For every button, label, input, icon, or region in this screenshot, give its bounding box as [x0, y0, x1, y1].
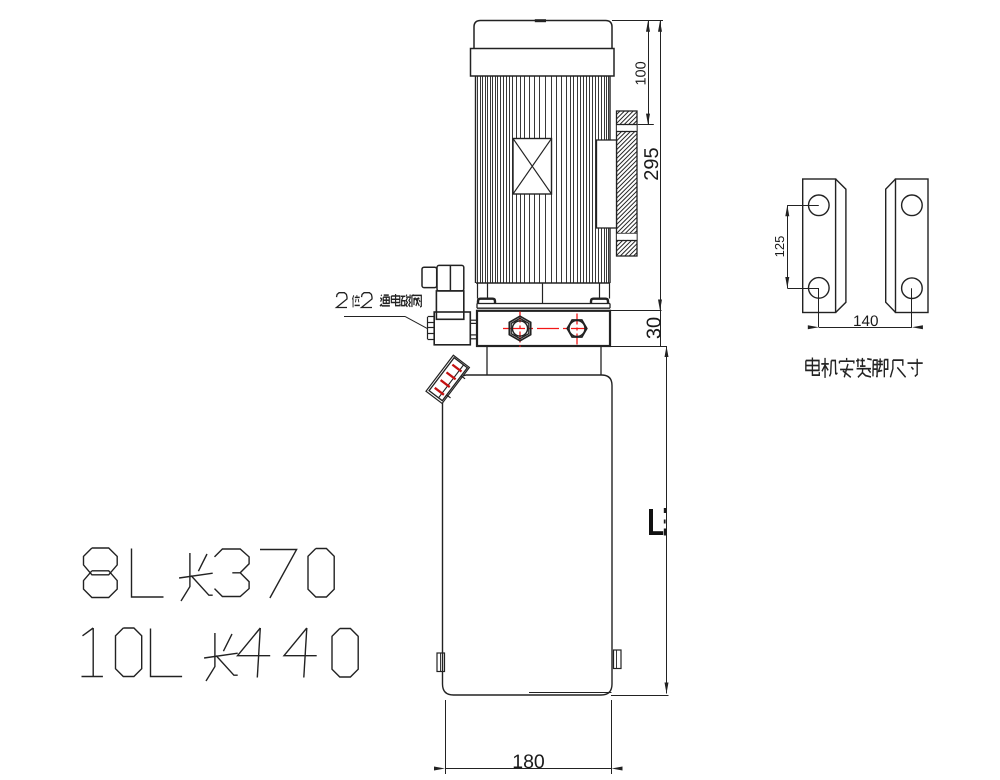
svg-text:180: 180: [512, 751, 545, 773]
svg-text:30: 30: [644, 317, 666, 339]
svg-text:295: 295: [641, 147, 663, 180]
svg-text:100: 100: [634, 61, 650, 85]
svg-text:140: 140: [853, 313, 879, 330]
svg-text:125: 125: [772, 236, 787, 258]
